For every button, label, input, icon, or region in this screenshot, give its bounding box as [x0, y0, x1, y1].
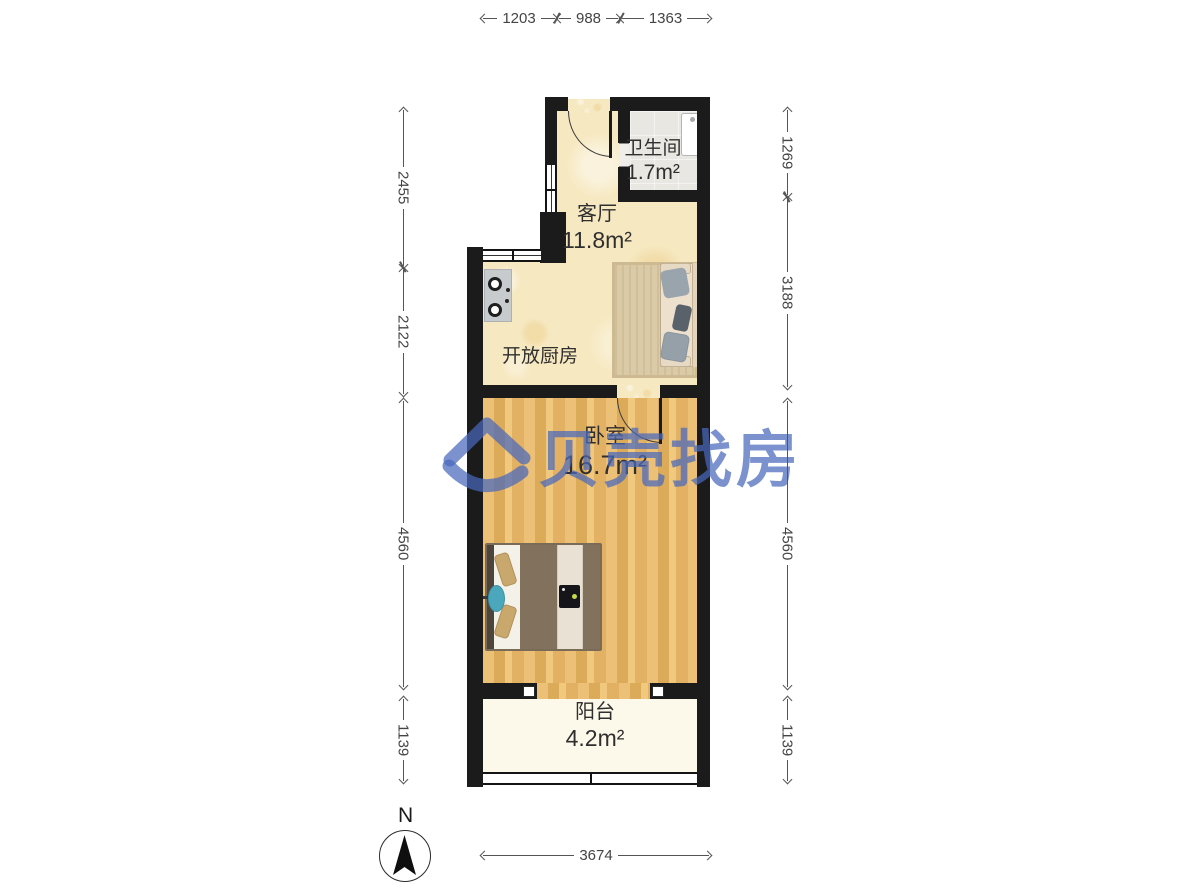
- faucet-dot: [690, 117, 695, 122]
- dim-left-2: 4560: [395, 399, 411, 689]
- arrow-down-icon: [782, 381, 792, 391]
- stove-icon: [484, 269, 512, 322]
- wall-balcony-post-left: [467, 770, 483, 787]
- dim-value: 1363: [644, 10, 687, 27]
- dim-top-0: 1203: [481, 10, 557, 26]
- wall-left-main: [467, 247, 483, 787]
- arrow-down-icon: [782, 681, 792, 691]
- dim-right-0: 1269: [779, 108, 795, 197]
- dim-top-1: 988: [557, 10, 620, 26]
- dim-top-2: 1363: [620, 10, 711, 26]
- sofa-icon: [660, 263, 700, 367]
- dim-value: 2122: [395, 311, 412, 352]
- arrow-left-icon: [480, 13, 490, 23]
- room-label-balcony: 阳台 4.2m²: [530, 701, 660, 751]
- dim-right-3: 1139: [779, 697, 795, 783]
- arrow-down-icon: [398, 388, 408, 398]
- dim-value: 1139: [779, 720, 796, 760]
- window-balcony: [483, 772, 697, 785]
- room-label-kitchen: 开放厨房: [478, 346, 602, 368]
- stove-knob: [506, 288, 510, 292]
- room-name: 开放厨房: [478, 346, 602, 368]
- dim-value: 4560: [395, 523, 412, 564]
- arrow-right-icon: [703, 13, 713, 23]
- dim-right-2: 4560: [779, 399, 795, 689]
- room-name: 卫生间: [593, 138, 713, 160]
- wall-left-upper: [545, 97, 557, 167]
- arrow-down-icon: [782, 775, 792, 785]
- arrow-up-icon: [398, 107, 408, 117]
- sofa-pillow: [660, 331, 690, 363]
- tablet-dot: [572, 594, 577, 599]
- arrow-up-icon: [398, 398, 408, 408]
- arrow-up-icon: [782, 398, 792, 408]
- room-label-living: 客厅 11.8m²: [537, 203, 657, 253]
- dim-value: 1269: [779, 132, 796, 173]
- wall-divider-left: [467, 385, 617, 398]
- arrow-up-icon: [398, 696, 408, 706]
- bedroom-door-threshold: [617, 385, 660, 399]
- compass-needle-icon: [380, 831, 429, 880]
- bed-round-pillow: [488, 585, 505, 612]
- stove-burner-icon: [488, 277, 502, 291]
- dim-value: 3674: [574, 847, 617, 864]
- arrow-right-icon: [703, 850, 713, 860]
- bed-tablet: [559, 585, 580, 608]
- room-name: 客厅: [537, 203, 657, 226]
- wall-divider-right: [660, 385, 710, 398]
- room-area: 11.8m²: [537, 227, 657, 253]
- balcony-slide-panel-right: [652, 686, 664, 697]
- wall-balcony-post-right: [697, 770, 710, 787]
- dim-value: 1203: [497, 10, 540, 27]
- dim-value: 3188: [779, 272, 796, 313]
- dim-left-0: 2455: [395, 108, 411, 268]
- dim-right-1: 3188: [779, 197, 795, 389]
- room-name: 卧室: [535, 425, 675, 449]
- wall-bathroom-bottom: [618, 190, 710, 202]
- arrow-down-icon: [398, 775, 408, 785]
- compass-icon: [379, 830, 431, 882]
- room-area: 16.7m²: [535, 450, 675, 481]
- balcony-slide-panel-left: [523, 686, 535, 697]
- dim-value: 1139: [395, 720, 412, 760]
- dim-value: 4560: [779, 523, 796, 564]
- dim-value: 988: [571, 10, 606, 27]
- window-tick: [590, 774, 592, 783]
- room-area: 1.7m²: [593, 161, 713, 185]
- room-name: 阳台: [530, 701, 660, 724]
- window-tick: [547, 189, 555, 191]
- window-tick: [512, 251, 514, 260]
- window-kitchen-step: [483, 249, 541, 262]
- arrow-down-icon: [398, 681, 408, 691]
- arrow-up-icon: [782, 107, 792, 117]
- sofa-pillow: [660, 267, 690, 299]
- compass-north-label: N: [398, 804, 413, 828]
- tablet-dot-small: [562, 588, 565, 591]
- room-area: 4.2m²: [530, 725, 660, 751]
- arrow-up-icon: [782, 696, 792, 706]
- dim-left-3: 1139: [395, 697, 411, 783]
- arrow-left-icon: [480, 850, 490, 860]
- stove-knob: [505, 299, 509, 303]
- dim-left-1: 2122: [395, 268, 411, 396]
- dim-value: 2455: [395, 167, 412, 208]
- room-label-bathroom: 卫生间 1.7m²: [593, 138, 713, 185]
- balcony-door-threshold: [537, 683, 650, 700]
- bed-icon: [485, 543, 602, 651]
- room-label-bedroom: 卧室 16.7m²: [535, 425, 675, 481]
- stove-burner-icon: [488, 303, 502, 317]
- wall-top-right: [610, 97, 710, 111]
- dim-bottom-0: 3674: [481, 847, 711, 863]
- floorplan-image: 卫生间 1.7m² 客厅 11.8m² 开放厨房 卧室 16.7m² 阳台 4.…: [0, 0, 1190, 890]
